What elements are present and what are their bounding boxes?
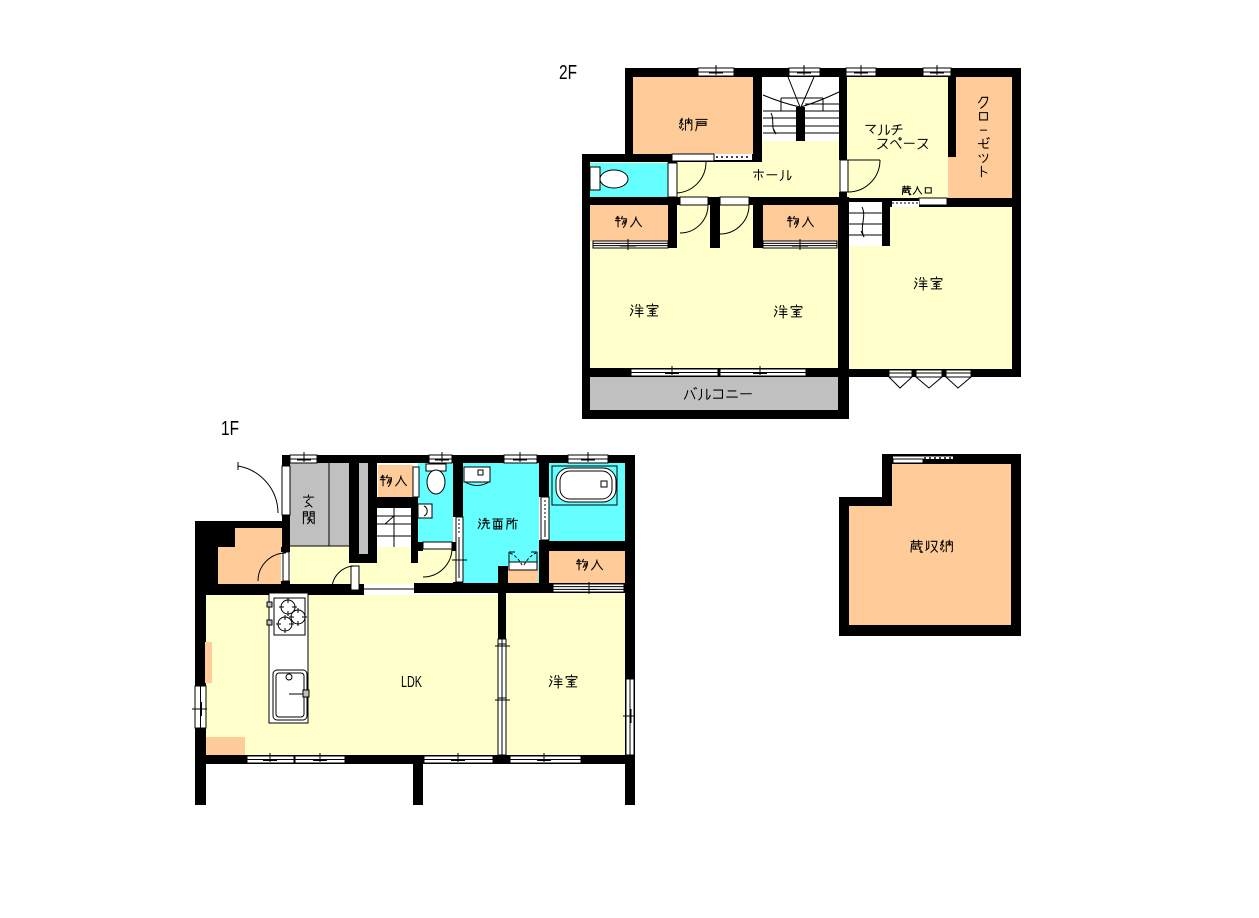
- svg-text:1F: 1F: [221, 418, 239, 440]
- svg-text:LDK: LDK: [401, 674, 422, 691]
- svg-text:2F: 2F: [559, 62, 577, 84]
